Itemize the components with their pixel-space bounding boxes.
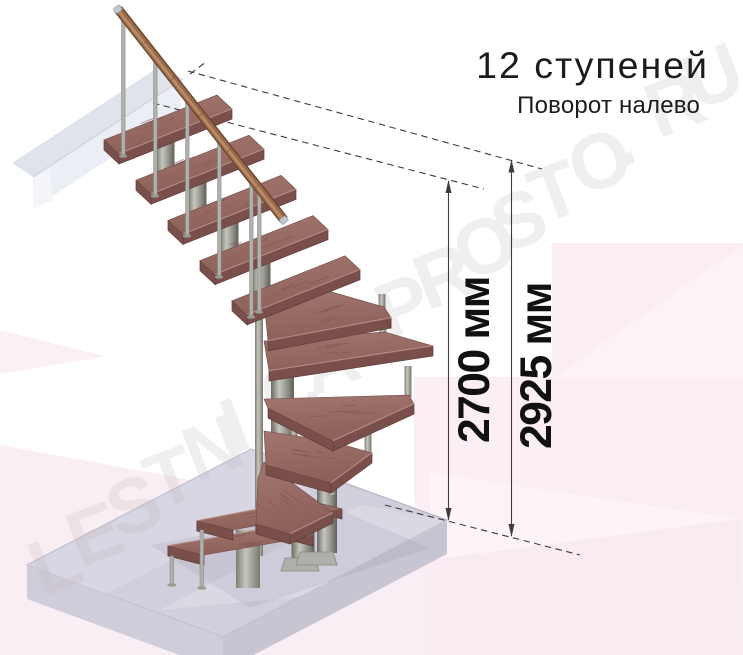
svg-text:Поворот налево: Поворот налево	[517, 92, 700, 119]
svg-text:2700 мм: 2700 мм	[450, 277, 499, 443]
svg-text:12 ступеней: 12 ступеней	[476, 44, 709, 86]
svg-text:2925 мм: 2925 мм	[512, 283, 561, 449]
